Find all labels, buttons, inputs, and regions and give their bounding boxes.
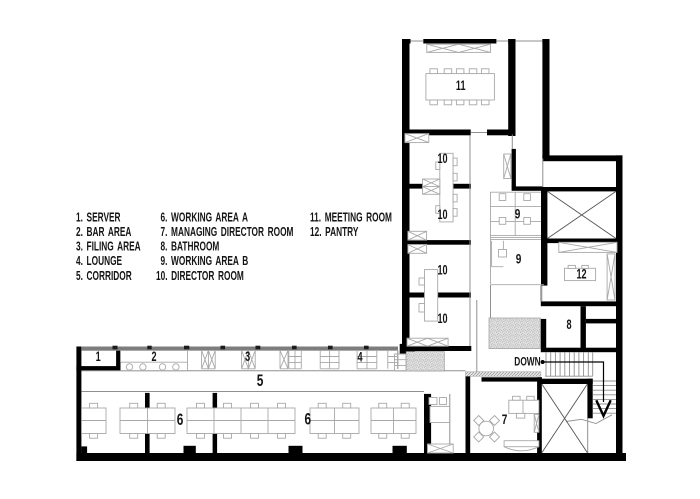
svg-text:10: 10 — [437, 208, 447, 222]
svg-text:11. MEETING ROOM: 11. MEETING ROOM — [310, 211, 392, 225]
svg-text:10. DIRECTOR ROOM: 10. DIRECTOR ROOM — [156, 269, 244, 283]
svg-text:1: 1 — [96, 350, 102, 364]
svg-text:10: 10 — [437, 152, 447, 166]
svg-text:9. WORKING AREA B: 9. WORKING AREA B — [161, 255, 249, 269]
svg-text:12: 12 — [576, 268, 586, 282]
svg-text:10: 10 — [437, 312, 447, 326]
svg-text:4: 4 — [357, 351, 363, 365]
svg-text:8. BATHROOM: 8. BATHROOM — [161, 240, 220, 254]
svg-text:3: 3 — [245, 350, 250, 364]
svg-text:2. BAR AREA: 2. BAR AREA — [76, 226, 132, 240]
svg-text:7. MANAGING DIRECTOR ROOM: 7. MANAGING DIRECTOR ROOM — [161, 226, 294, 240]
svg-text:3. FILING AREA: 3. FILING AREA — [76, 240, 141, 254]
svg-text:7: 7 — [502, 411, 508, 427]
svg-text:5. CORRIDOR: 5. CORRIDOR — [76, 269, 132, 283]
svg-text:11: 11 — [456, 79, 466, 93]
svg-text:1. SERVER: 1. SERVER — [76, 211, 121, 225]
svg-text:9: 9 — [515, 206, 521, 222]
svg-text:10: 10 — [437, 264, 447, 278]
svg-text:2: 2 — [151, 350, 156, 364]
svg-text:5: 5 — [257, 372, 264, 390]
svg-text:6. WORKING AREA A: 6. WORKING AREA A — [161, 211, 249, 225]
svg-text:9: 9 — [516, 251, 522, 267]
svg-text:4. LOUNGE: 4. LOUNGE — [76, 255, 122, 269]
svg-text:6: 6 — [177, 411, 184, 429]
svg-text:8: 8 — [566, 318, 572, 332]
svg-text:DOWN: DOWN — [514, 356, 540, 369]
svg-text:12. PANTRY: 12. PANTRY — [310, 226, 358, 240]
svg-text:6: 6 — [304, 411, 311, 429]
